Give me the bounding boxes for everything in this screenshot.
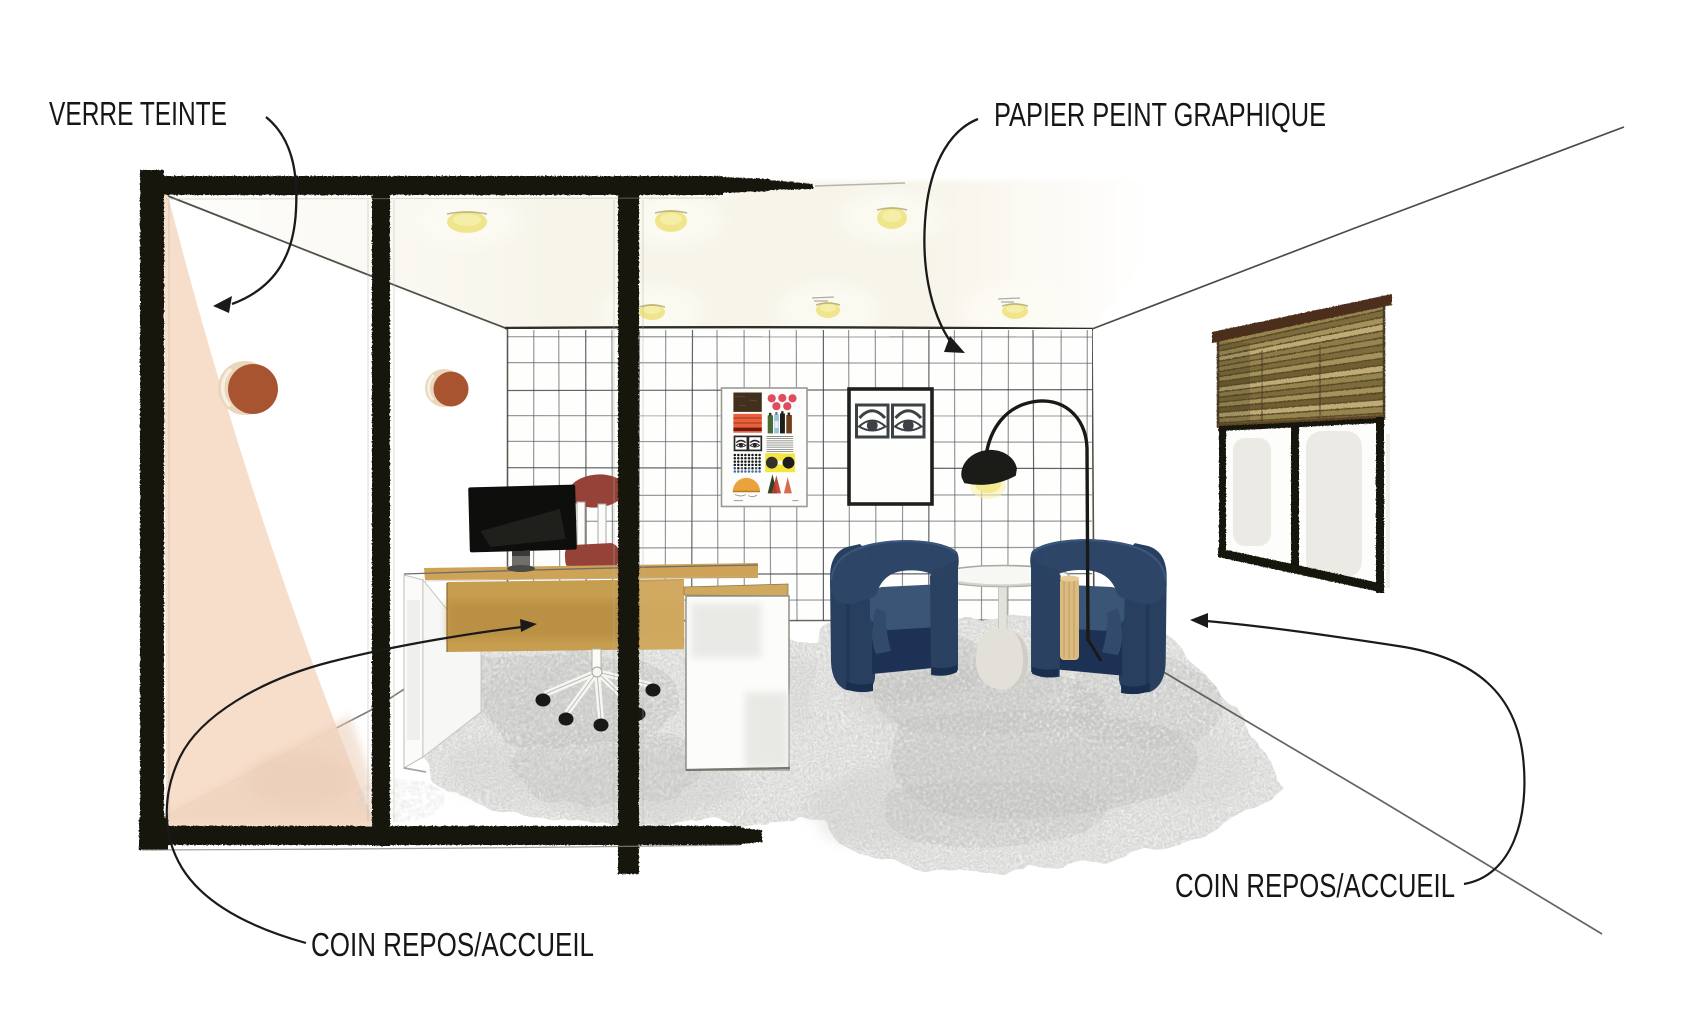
svg-text:COIN REPOS/ACCUEIL: COIN REPOS/ACCUEIL: [1175, 867, 1455, 904]
svg-text:VERRE TEINTE: VERRE TEINTE: [49, 95, 227, 132]
svg-text:PAPIER PEINT GRAPHIQUE: PAPIER PEINT GRAPHIQUE: [994, 96, 1326, 133]
svg-text:COIN REPOS/ACCUEIL: COIN REPOS/ACCUEIL: [311, 926, 594, 963]
